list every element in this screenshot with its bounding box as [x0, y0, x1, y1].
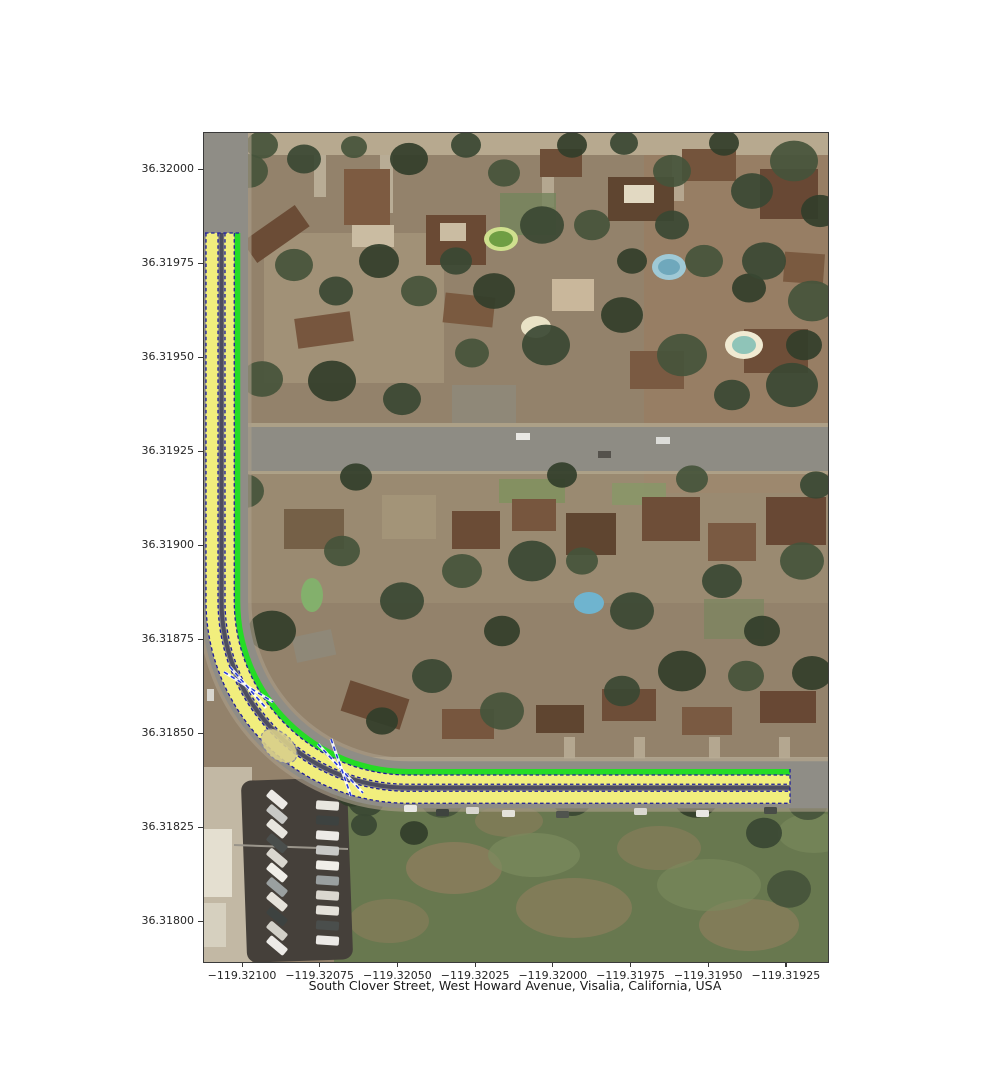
car — [556, 811, 569, 818]
x-tick — [785, 962, 786, 967]
house — [783, 252, 825, 285]
satellite-map — [204, 133, 828, 962]
tree — [604, 676, 640, 707]
grass-patch — [657, 859, 761, 911]
y-tick-label: 36.31925 — [128, 444, 194, 458]
x-axis-label: South Clover Street, West Howard Avenue,… — [203, 978, 827, 994]
tree — [440, 247, 472, 274]
tree — [601, 297, 643, 333]
tree — [728, 661, 764, 692]
tree — [655, 211, 689, 240]
y-tick — [198, 921, 203, 922]
tree — [566, 547, 598, 574]
house-roof-light — [440, 223, 466, 241]
tree — [610, 592, 654, 629]
tree — [767, 870, 811, 907]
x-tick — [708, 962, 709, 967]
tree — [442, 554, 482, 588]
tree — [484, 616, 520, 647]
house — [760, 691, 816, 723]
y-tick — [198, 263, 203, 264]
tree — [731, 173, 773, 209]
x-tick — [475, 962, 476, 967]
y-tick — [198, 733, 203, 734]
tree — [455, 339, 489, 368]
tree — [401, 276, 437, 307]
house — [566, 513, 616, 555]
house — [452, 511, 500, 549]
tree — [359, 244, 399, 278]
parked-car — [316, 860, 340, 871]
building — [204, 829, 232, 897]
parked-car — [316, 920, 340, 931]
car — [502, 810, 515, 817]
plot-area: 36.3200036.3197536.3195036.3192536.31900… — [203, 132, 829, 963]
tree — [324, 536, 360, 567]
pool — [658, 259, 680, 275]
house — [512, 499, 556, 531]
parked-car — [316, 905, 340, 916]
x-tick — [319, 962, 320, 967]
tree — [766, 363, 818, 407]
house-roof-light — [624, 185, 654, 203]
car — [466, 807, 479, 814]
matplotlib-figure: 36.3200036.3197536.3195036.3192536.31900… — [0, 0, 1005, 1080]
tree — [653, 155, 691, 187]
driveway — [779, 737, 790, 759]
tree — [786, 330, 822, 361]
y-tick — [198, 357, 203, 358]
dirt-patch — [516, 878, 632, 938]
car — [764, 807, 777, 814]
tree — [380, 582, 424, 619]
tree — [400, 821, 428, 845]
house — [382, 495, 436, 539]
house-roof-light — [352, 225, 394, 247]
x-tick — [397, 962, 398, 967]
y-tick — [198, 545, 203, 546]
tree — [574, 210, 610, 241]
car — [404, 805, 417, 812]
y-tick-label: 36.31800 — [128, 914, 194, 928]
y-tick — [198, 639, 203, 640]
tree — [366, 707, 398, 734]
y-tick-label: 36.31875 — [128, 632, 194, 646]
tree — [685, 245, 723, 277]
house — [708, 523, 756, 561]
house — [682, 707, 732, 735]
pool — [301, 578, 323, 612]
tree — [522, 325, 570, 366]
y-tick — [198, 451, 203, 452]
house — [536, 705, 584, 733]
parked-car — [316, 845, 340, 856]
pool — [489, 231, 513, 247]
tree — [557, 133, 587, 158]
house — [552, 279, 594, 311]
y-tick-label: 36.31950 — [128, 350, 194, 364]
tree — [508, 541, 556, 582]
car — [598, 451, 611, 458]
tree — [275, 249, 313, 281]
tree — [547, 462, 577, 488]
curb — [204, 471, 828, 474]
tree — [473, 273, 515, 309]
building — [204, 903, 226, 947]
dirt-patch — [349, 899, 429, 943]
y-tick-label: 36.32000 — [128, 162, 194, 176]
tree — [742, 242, 786, 279]
map-background — [204, 133, 828, 962]
parked-car — [316, 890, 340, 901]
parked-car — [316, 875, 340, 886]
tree — [714, 380, 750, 411]
tree — [488, 159, 520, 186]
house — [766, 497, 826, 545]
house — [344, 169, 390, 225]
pool — [574, 592, 604, 614]
tree — [744, 616, 780, 647]
driveway — [709, 737, 720, 759]
tree — [770, 141, 818, 182]
x-tick — [630, 962, 631, 967]
parked-car — [316, 935, 340, 946]
tree — [480, 692, 524, 729]
tree — [351, 814, 377, 836]
y-tick-label: 36.31900 — [128, 538, 194, 552]
car — [696, 810, 709, 817]
y-tick-label: 36.31825 — [128, 820, 194, 834]
tree — [617, 248, 647, 274]
house — [452, 385, 516, 423]
tree — [746, 818, 782, 849]
y-tick — [198, 169, 203, 170]
tree — [383, 383, 421, 415]
tree — [658, 651, 706, 692]
y-tick-label: 36.31850 — [128, 726, 194, 740]
tree — [676, 465, 708, 492]
car — [516, 433, 530, 440]
house — [642, 497, 700, 541]
tree — [520, 206, 564, 243]
x-tick — [242, 962, 243, 967]
driveway — [634, 737, 645, 759]
parked-car — [316, 830, 340, 841]
tree — [308, 361, 356, 402]
car — [207, 689, 214, 701]
tree — [657, 334, 707, 377]
tree — [287, 145, 321, 174]
curb — [204, 423, 828, 427]
car — [436, 809, 449, 816]
car — [656, 437, 670, 444]
y-tick — [198, 827, 203, 828]
dirt-patch — [406, 842, 502, 894]
driveway — [564, 737, 575, 759]
pool — [732, 336, 756, 354]
grass-patch — [488, 833, 580, 877]
tree — [341, 136, 367, 158]
tree — [390, 143, 428, 175]
tree — [702, 564, 742, 598]
car — [634, 808, 647, 815]
tree — [319, 277, 353, 306]
parked-car — [316, 800, 340, 811]
tree — [340, 463, 372, 490]
tree — [780, 542, 824, 579]
parked-car — [316, 815, 340, 826]
x-tick — [552, 962, 553, 967]
tree — [412, 659, 452, 693]
tree — [451, 133, 481, 158]
y-tick-label: 36.31975 — [128, 256, 194, 270]
